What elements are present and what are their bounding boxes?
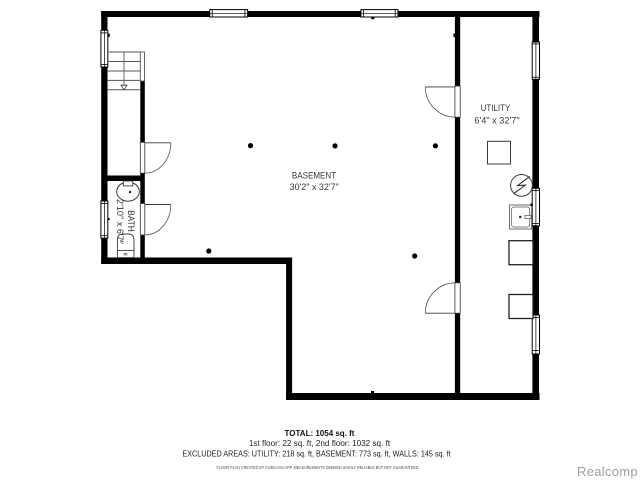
svg-text:30'2" x 32'7": 30'2" x 32'7" — [290, 182, 339, 192]
svg-text:EXCLUDED AREAS: UTILITY: 218 s: EXCLUDED AREAS: UTILITY: 218 sq. ft, BAS… — [182, 450, 451, 459]
svg-text:TOTAL: 1054 sq. ft: TOTAL: 1054 sq. ft — [285, 429, 355, 438]
svg-text:BATH: BATH — [126, 210, 136, 232]
svg-text:1st floor: 22 sq. ft, 2nd floo: 1st floor: 22 sq. ft, 2nd floor: 1032 sq… — [249, 439, 391, 448]
svg-text:6'4" x 32'7": 6'4" x 32'7" — [474, 116, 519, 126]
svg-text:UTILITY: UTILITY — [481, 103, 511, 113]
svg-text:BASEMENT: BASEMENT — [292, 170, 337, 180]
svg-text:Realcomp: Realcomp — [577, 464, 638, 479]
svg-text:2'10" x 6'7": 2'10" x 6'7" — [115, 199, 125, 244]
svg-text:FLOOR PLAN CREATED BY CUBICASA: FLOOR PLAN CREATED BY CUBICASA APP, MEAS… — [217, 465, 419, 471]
